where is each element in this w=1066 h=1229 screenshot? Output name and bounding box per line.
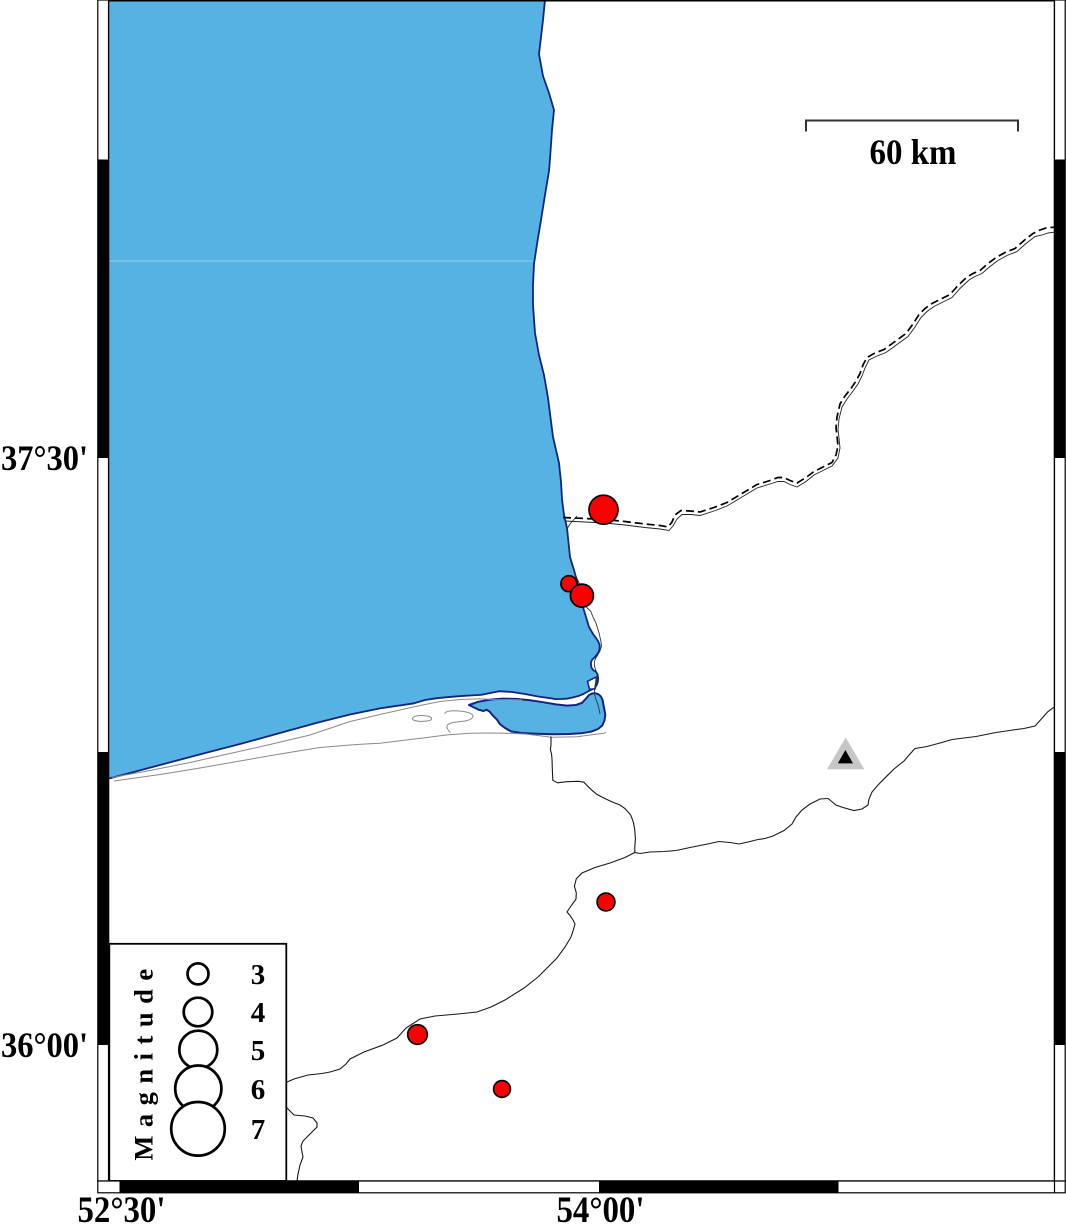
svg-text:37°30': 37°30'	[1, 438, 88, 478]
svg-text:36°00': 36°00'	[1, 1025, 88, 1065]
svg-text:54°00': 54°00'	[557, 1190, 645, 1229]
svg-text:6: 6	[251, 1074, 266, 1106]
svg-text:52°30': 52°30'	[78, 1190, 166, 1229]
svg-text:4: 4	[251, 997, 266, 1029]
svg-text:7: 7	[251, 1114, 266, 1146]
svg-text:5: 5	[251, 1035, 266, 1067]
svg-text:60 km: 60 km	[870, 132, 957, 172]
svg-text:Magnitude: Magnitude	[129, 960, 159, 1160]
svg-text:3: 3	[251, 959, 266, 991]
